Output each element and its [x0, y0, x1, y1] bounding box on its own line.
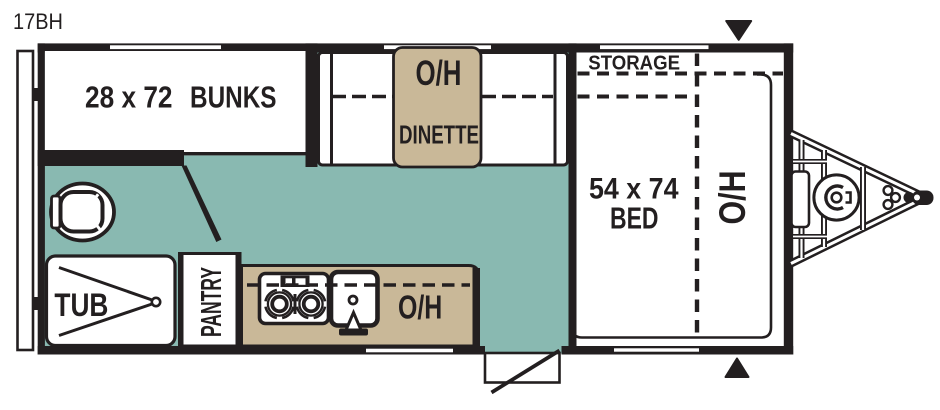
svg-text:BED: BED — [610, 202, 659, 236]
svg-text:28 x 72: 28 x 72 — [85, 81, 173, 115]
svg-text:O/H: O/H — [416, 54, 462, 93]
svg-text:O/H: O/H — [712, 171, 753, 225]
svg-text:STORAGE: STORAGE — [588, 52, 680, 75]
svg-text:BUNKS: BUNKS — [190, 81, 277, 115]
svg-text:DINETTE: DINETTE — [399, 122, 479, 150]
svg-text:TUB: TUB — [54, 287, 108, 323]
svg-text:17BH: 17BH — [13, 9, 63, 34]
svg-text:O/H: O/H — [398, 289, 442, 326]
svg-text:PANTRY: PANTRY — [196, 267, 228, 337]
